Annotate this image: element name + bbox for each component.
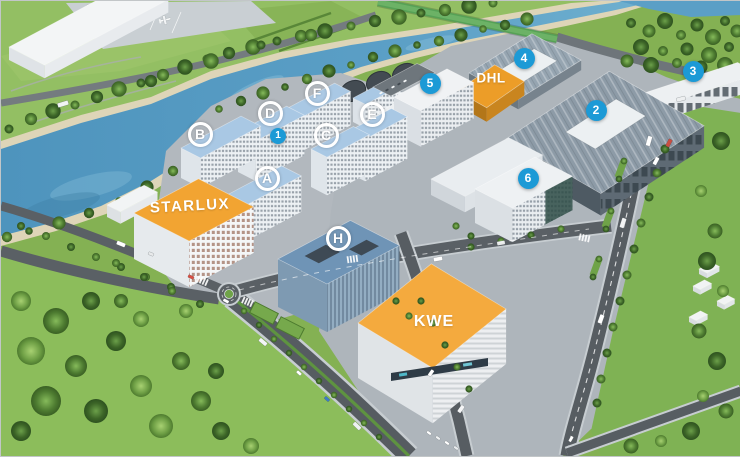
map-badge-b[interactable]: B <box>188 122 213 147</box>
map-badge-3[interactable]: 3 <box>683 61 704 82</box>
map-badge-5[interactable]: 5 <box>420 73 441 94</box>
map-badge-1[interactable]: 1 <box>270 128 286 144</box>
map-badge-a[interactable]: A <box>255 166 280 191</box>
roundabout <box>217 282 241 306</box>
site-map: ABCDEFH123456STARLUXDHLKWE <box>0 0 740 457</box>
map-badge-c[interactable]: C <box>314 123 339 148</box>
aerial-render <box>1 1 740 456</box>
map-badge-h[interactable]: H <box>326 226 351 251</box>
map-badge-4[interactable]: 4 <box>514 48 535 69</box>
map-badge-2[interactable]: 2 <box>586 100 607 121</box>
map-badge-d[interactable]: D <box>258 101 283 126</box>
map-badge-f[interactable]: F <box>305 81 330 106</box>
map-badge-e[interactable]: E <box>360 102 385 127</box>
map-badge-6[interactable]: 6 <box>518 168 539 189</box>
